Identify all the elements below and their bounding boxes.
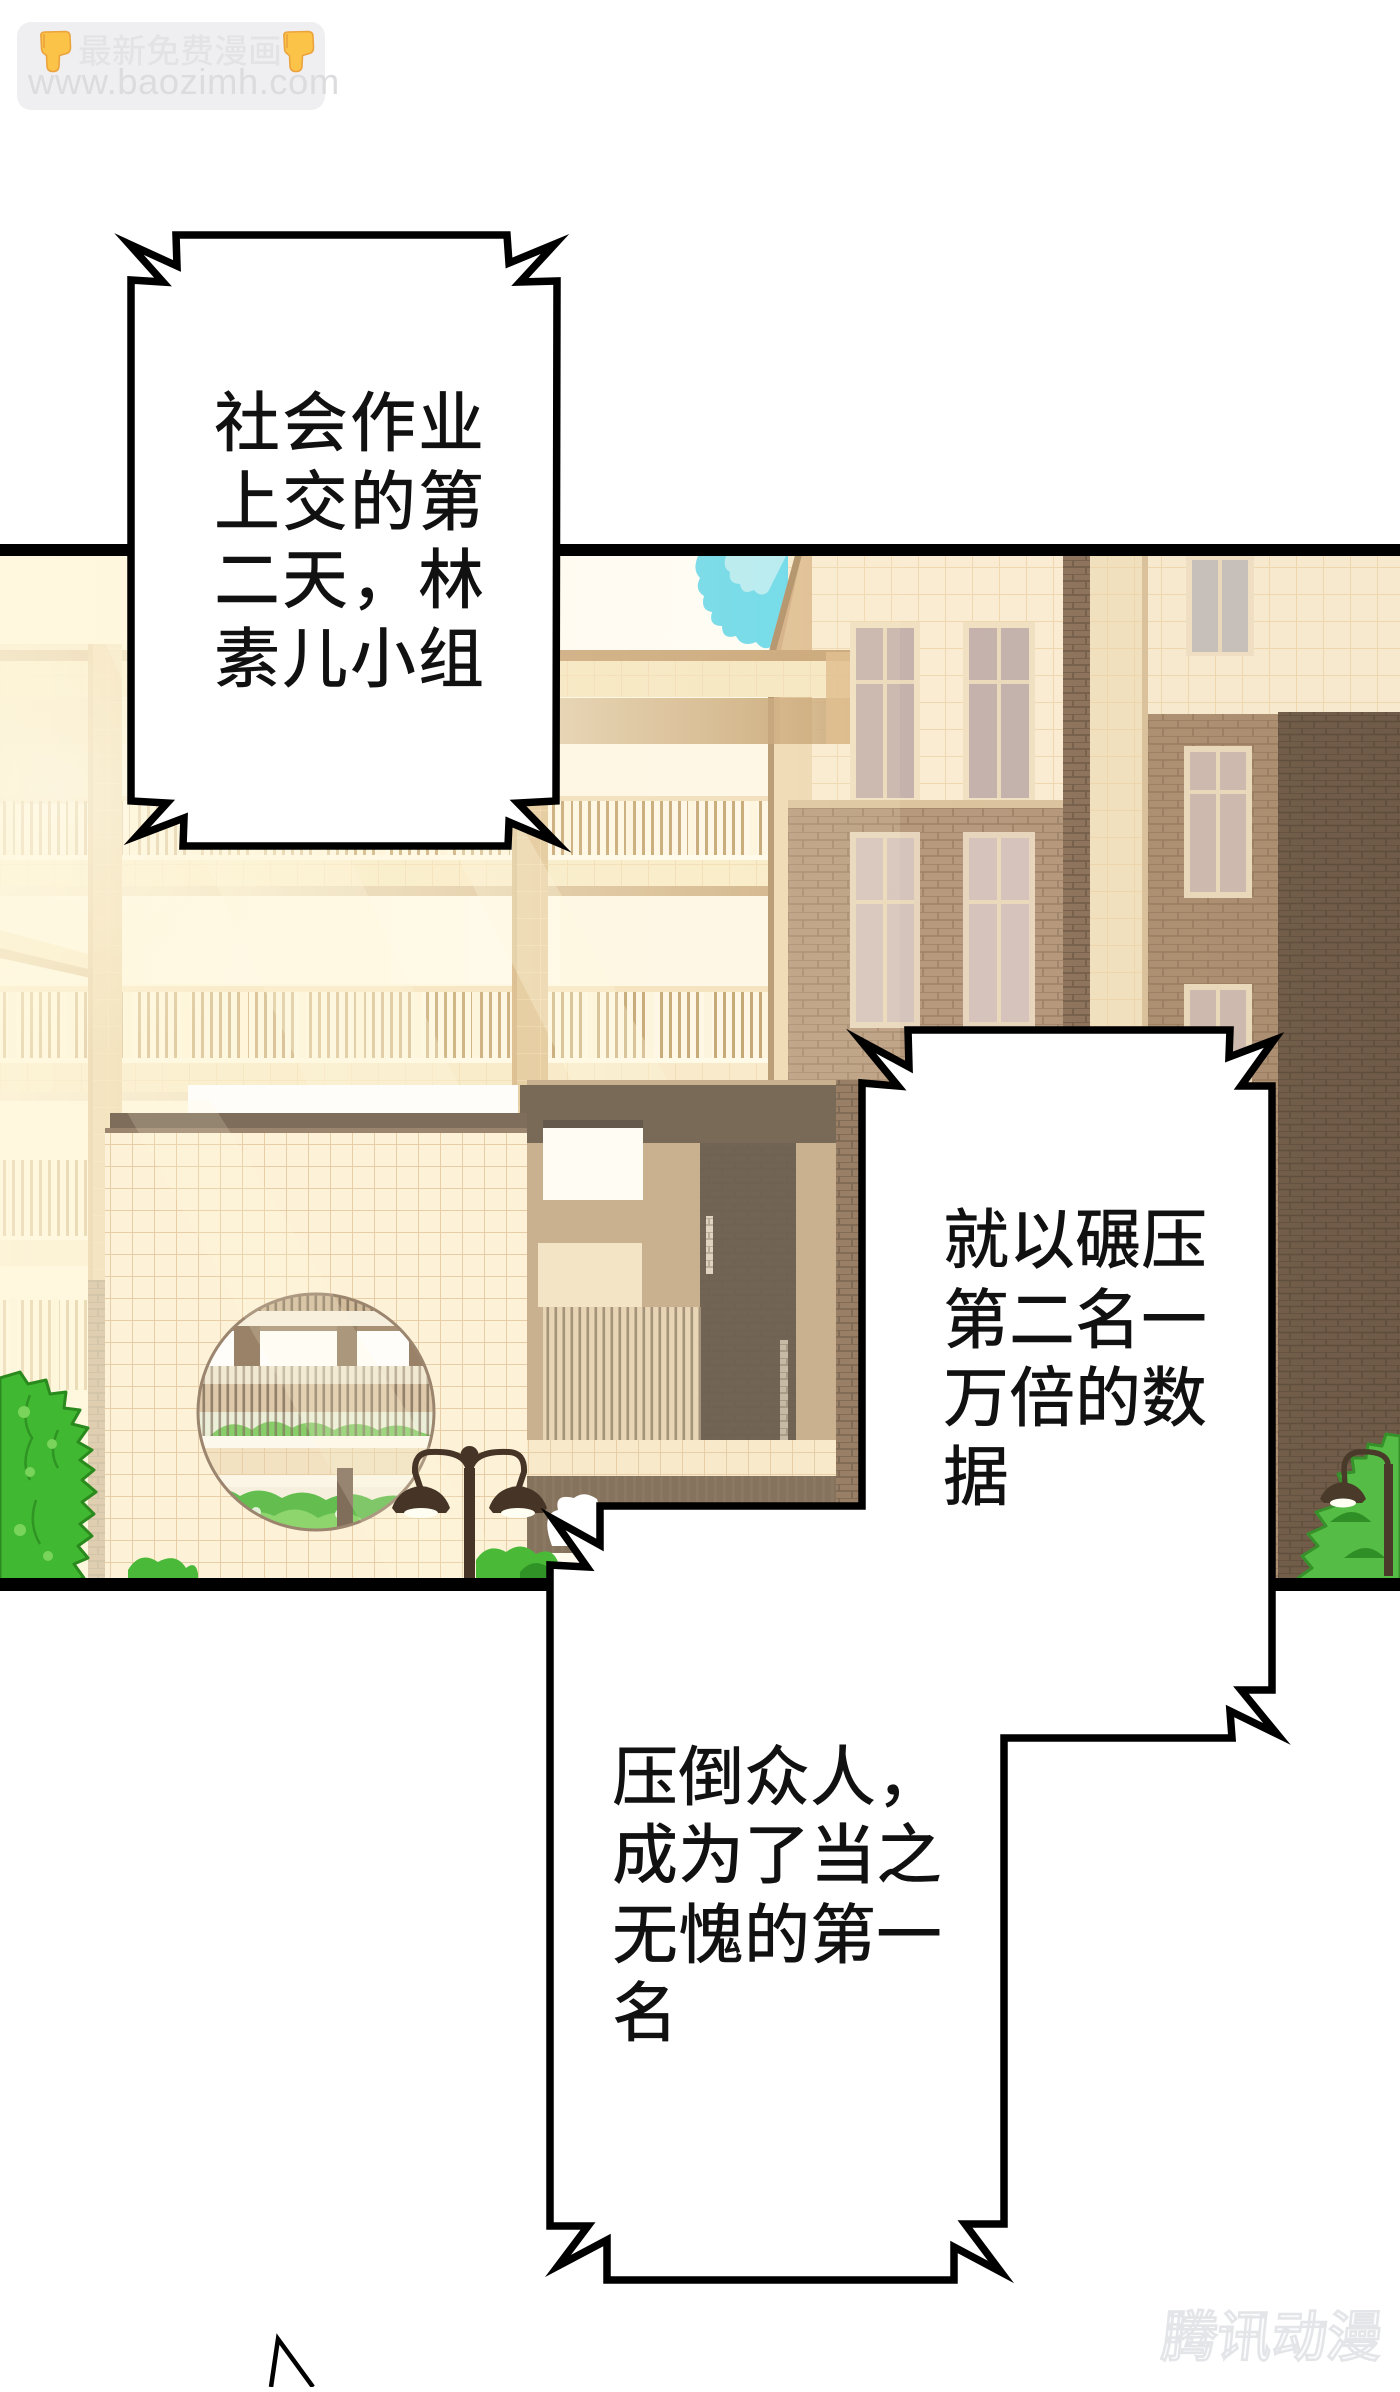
svg-text:www.baozimh.com: www.baozimh.com <box>27 61 340 102</box>
